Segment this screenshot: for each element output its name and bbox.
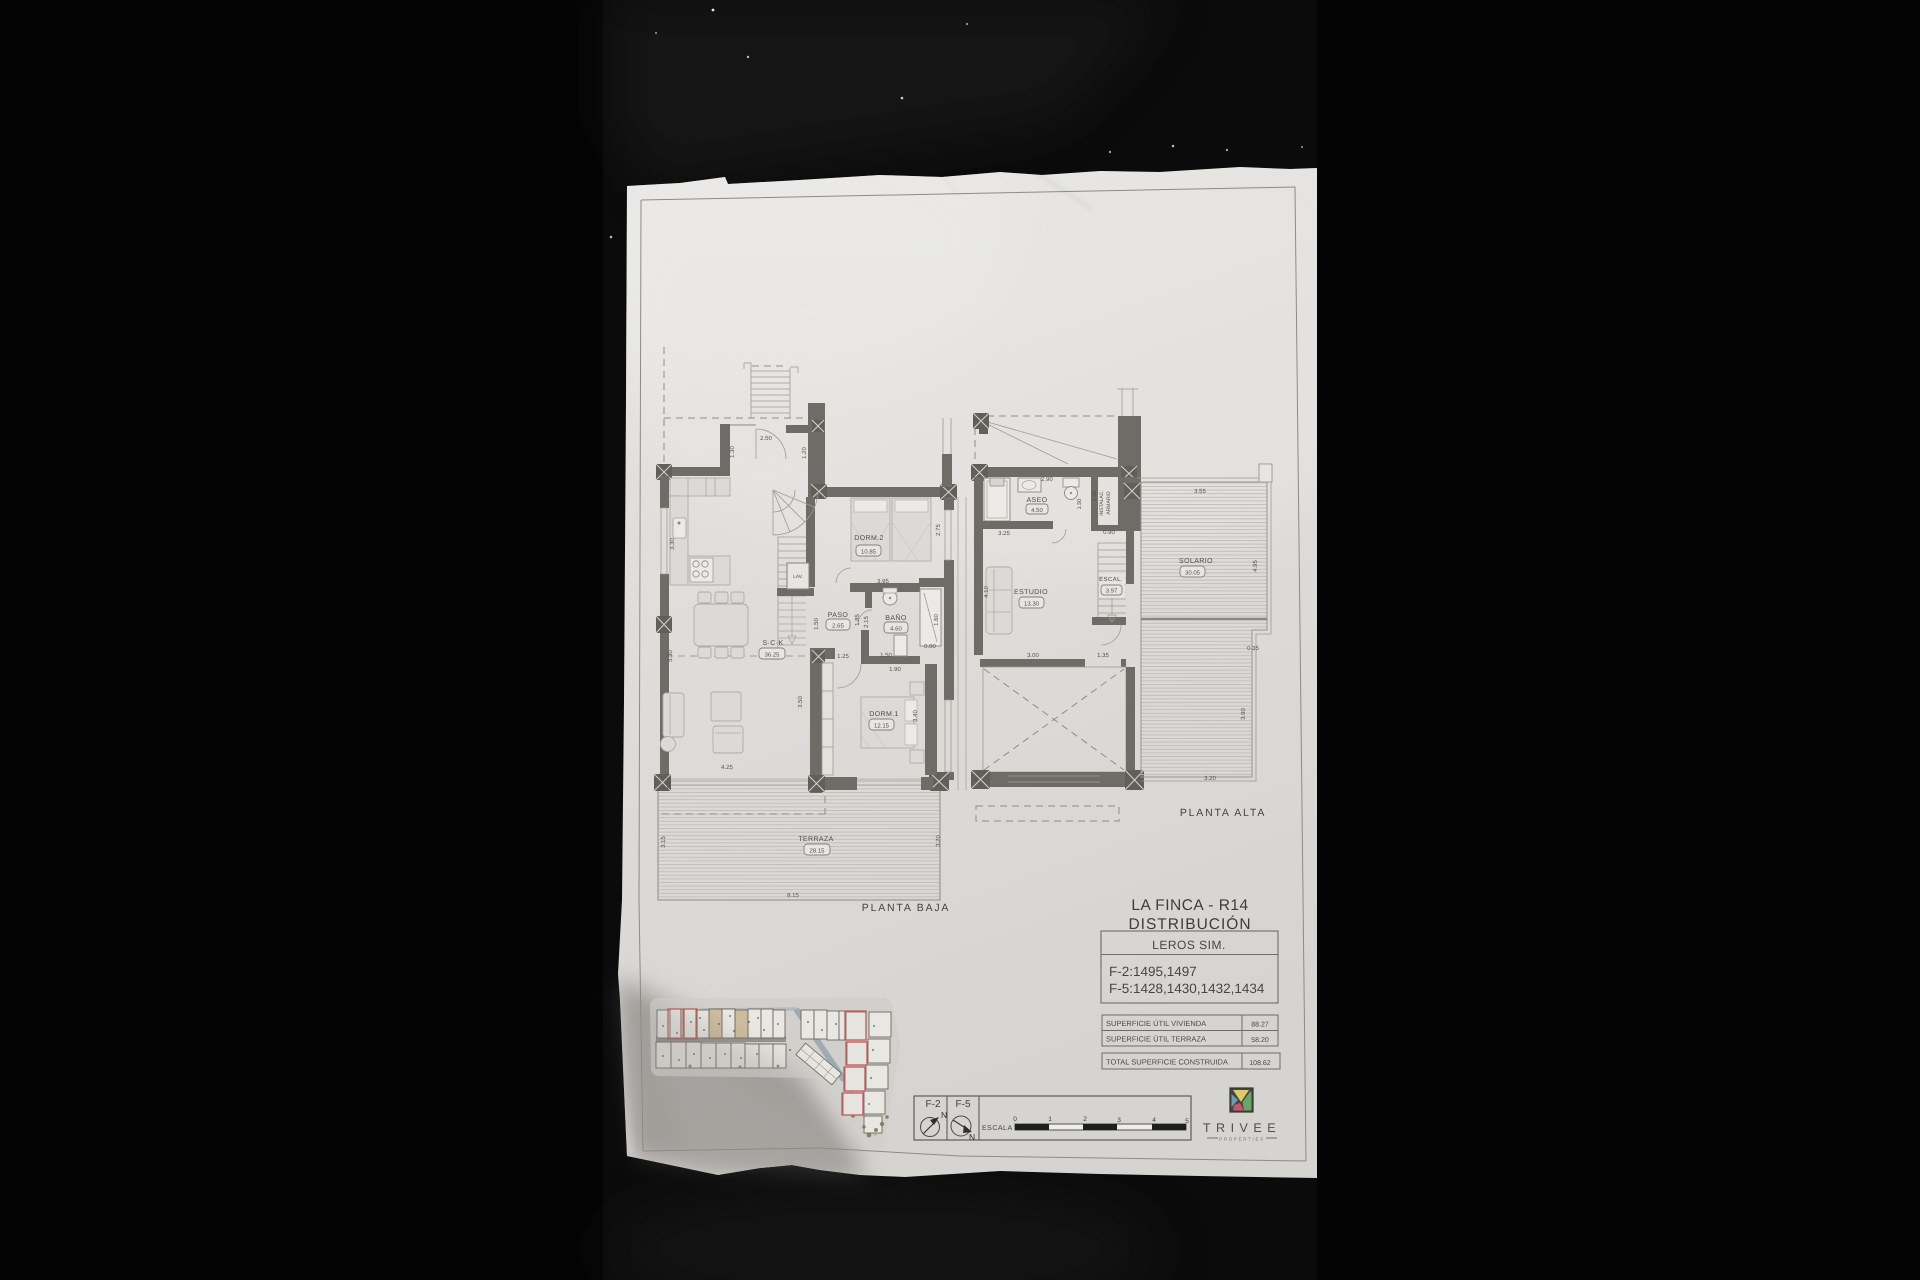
svg-text:10.85: 10.85 [861, 549, 877, 556]
svg-text:DISTRIBUCIÓN: DISTRIBUCIÓN [1128, 915, 1251, 933]
svg-text:2.65: 2.65 [832, 623, 844, 630]
svg-text:DORM.1: DORM.1 [869, 711, 899, 718]
svg-text:1.35: 1.35 [1097, 652, 1109, 659]
svg-text:BAÑO: BAÑO [885, 613, 907, 622]
svg-text:2.90: 2.90 [1041, 476, 1053, 483]
svg-text:1.20: 1.20 [801, 447, 808, 459]
svg-text:3.25: 3.25 [998, 530, 1010, 537]
svg-text:SOLARIO: SOLARIO [1179, 558, 1213, 565]
svg-text:PASO: PASO [828, 612, 849, 619]
svg-text:1: 1 [1048, 1116, 1052, 1123]
svg-text:3.20: 3.20 [935, 835, 942, 847]
svg-text:DORM.2: DORM.2 [854, 535, 884, 542]
svg-text:PLANTA ALTA: PLANTA ALTA [1180, 807, 1266, 819]
svg-text:TERRAZA: TERRAZA [798, 836, 833, 843]
svg-text:13.30: 13.30 [1024, 601, 1040, 608]
svg-text:0.35: 0.35 [1247, 645, 1259, 652]
svg-text:4.50: 4.50 [1031, 507, 1043, 514]
svg-text:3: 3 [1117, 1117, 1121, 1124]
svg-text:5: 5 [1185, 1118, 1189, 1125]
svg-text:4.95: 4.95 [1252, 560, 1259, 572]
svg-text:8.15: 8.15 [787, 892, 799, 899]
svg-text:TRIVEE: TRIVEE [1203, 1121, 1281, 1135]
svg-text:88.27: 88.27 [1251, 1022, 1269, 1029]
svg-text:LAV.: LAV. [793, 574, 803, 580]
svg-text:F-5:1428,1430,1432,1434: F-5:1428,1430,1432,1434 [1109, 981, 1265, 996]
svg-text:1.25: 1.25 [837, 653, 849, 660]
svg-text:SUPERFICIE ÚTIL TERRAZA: SUPERFICIE ÚTIL TERRAZA [1106, 1035, 1206, 1044]
svg-text:4.25: 4.25 [721, 764, 733, 771]
svg-text:F-2:1495,1497: F-2:1495,1497 [1109, 964, 1197, 979]
svg-text:ESCAL.: ESCAL. [1099, 576, 1123, 583]
svg-text:ESTUDIO: ESTUDIO [1014, 589, 1048, 596]
svg-text:N: N [941, 1110, 947, 1120]
svg-text:4.60: 4.60 [890, 626, 902, 633]
svg-text:SUPERFICIE ÚTIL VIVIENDA: SUPERFICIE ÚTIL VIVIENDA [1106, 1019, 1206, 1028]
svg-text:108.62: 108.62 [1249, 1060, 1271, 1067]
svg-text:2.50: 2.50 [760, 435, 772, 442]
svg-text:3.40: 3.40 [912, 710, 919, 722]
svg-text:INSTALAC.: INSTALAC. [1099, 490, 1105, 515]
svg-text:3.55: 3.55 [1194, 488, 1206, 495]
svg-text:30.05: 30.05 [1185, 570, 1201, 577]
svg-text:3.20: 3.20 [1204, 775, 1216, 782]
svg-text:ESCALA :: ESCALA : [982, 1125, 1017, 1132]
svg-text:S·C·K: S·C·K [762, 640, 783, 647]
svg-text:4: 4 [1152, 1117, 1156, 1124]
svg-text:F-2: F-2 [926, 1099, 941, 1110]
svg-text:58.20: 58.20 [1251, 1037, 1269, 1044]
svg-text:0.90: 0.90 [1103, 529, 1115, 536]
svg-text:PLANTA BAJA: PLANTA BAJA [862, 902, 950, 914]
svg-text:3.00: 3.00 [1027, 652, 1039, 659]
svg-text:2: 2 [1083, 1116, 1087, 1123]
svg-text:1.50: 1.50 [880, 652, 892, 659]
svg-text:1.85: 1.85 [854, 614, 861, 626]
svg-text:36.25: 36.25 [764, 652, 780, 659]
svg-text:ASEO: ASEO [1026, 497, 1047, 504]
svg-text:ARMARIO: ARMARIO [1106, 491, 1112, 514]
svg-text:3.30: 3.30 [669, 538, 676, 550]
svg-text:1.90: 1.90 [889, 666, 901, 673]
svg-text:3.15: 3.15 [660, 836, 667, 848]
svg-text:LEROS SIM.: LEROS SIM. [1152, 938, 1226, 952]
svg-text:3.90: 3.90 [1240, 708, 1247, 720]
svg-text:2.75: 2.75 [935, 524, 942, 536]
svg-text:4.10: 4.10 [983, 586, 990, 598]
svg-text:1.30: 1.30 [729, 446, 736, 458]
svg-text:1.80: 1.80 [1092, 491, 1098, 502]
svg-text:PROPERTIES: PROPERTIES [1219, 1137, 1265, 1142]
svg-text:1.50: 1.50 [813, 618, 820, 630]
svg-text:2.15: 2.15 [863, 616, 870, 628]
svg-text:N: N [969, 1132, 975, 1142]
svg-text:3.50: 3.50 [797, 696, 804, 708]
svg-text:0: 0 [1013, 1116, 1017, 1123]
svg-text:0.60: 0.60 [666, 777, 673, 789]
svg-text:TOTAL SUPERFICIE CONSTRUIDA: TOTAL SUPERFICIE CONSTRUIDA [1106, 1058, 1228, 1067]
svg-text:5.30: 5.30 [667, 650, 674, 662]
svg-text:1.50: 1.50 [1077, 499, 1083, 510]
svg-text:3.97: 3.97 [1106, 588, 1118, 595]
svg-text:12.15: 12.15 [874, 723, 890, 730]
svg-text:F-5: F-5 [956, 1099, 971, 1110]
svg-text:1.60: 1.60 [933, 614, 940, 626]
svg-text:28.15: 28.15 [809, 848, 825, 855]
svg-text:0.90: 0.90 [924, 643, 936, 650]
svg-text:3.95: 3.95 [877, 578, 889, 585]
svg-text:LA FINCA - R14: LA FINCA - R14 [1131, 897, 1248, 914]
